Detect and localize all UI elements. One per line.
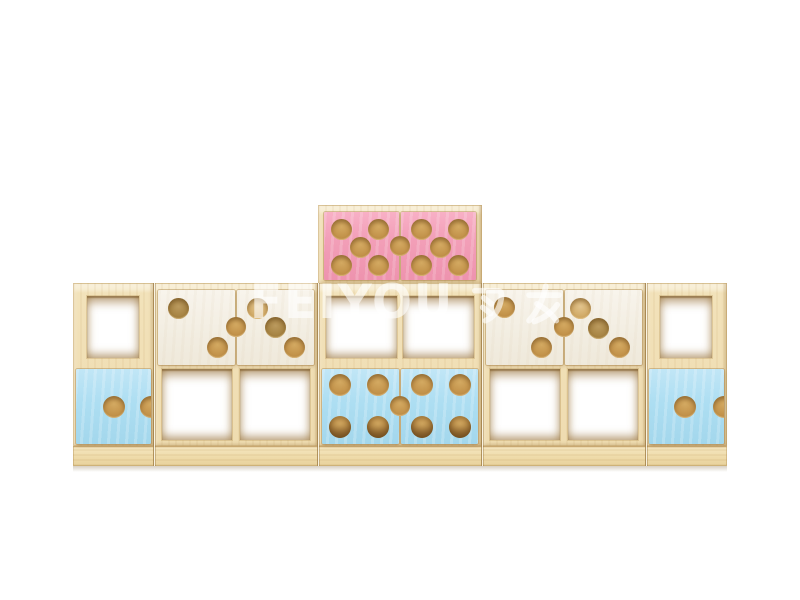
module-left-cube-plinth: [73, 446, 154, 466]
furniture-stage: FEIYOU: [0, 0, 800, 600]
door-pair-handle: [390, 396, 410, 416]
module-white-double-right-plinth: [482, 446, 646, 466]
door-edge-notch: [713, 396, 724, 418]
door-hole: [430, 237, 451, 258]
door-hole: [570, 298, 591, 319]
module-right-cube-plinth: [646, 446, 727, 466]
door-hole: [368, 255, 389, 276]
door-edge-notch: [140, 396, 151, 418]
door-hole: [168, 298, 189, 319]
module-center-tower-cubby-1: [326, 296, 397, 358]
module-center-tower-door-blue-4: [401, 369, 478, 444]
ground-shadow: [73, 466, 727, 473]
module-white-double-right-door-white-2: [565, 290, 642, 365]
door-hole: [331, 219, 352, 240]
module-junction: [481, 283, 484, 466]
door-hole: [329, 374, 351, 396]
door-hole: [207, 337, 228, 358]
door-hole: [494, 297, 515, 318]
module-junction: [645, 283, 648, 466]
module-junction: [317, 283, 320, 466]
module-white-double-right-cubby-1: [490, 369, 560, 440]
door-hole: [449, 416, 471, 438]
door-hole: [411, 374, 433, 396]
door-pair-handle: [554, 317, 574, 337]
door-hole: [588, 318, 609, 339]
door-hole: [368, 219, 389, 240]
door-pair-handle: [226, 317, 246, 337]
door-hole: [609, 337, 630, 358]
door-hole: [674, 396, 696, 418]
door-hole: [448, 255, 469, 276]
module-white-double-right-cubby-2: [568, 369, 638, 440]
module-right-cube-cubby-1: [660, 296, 712, 358]
door-hole: [329, 416, 351, 438]
door-hole: [531, 337, 552, 358]
module-right-cube-door-blue-1: [649, 369, 724, 444]
module-white-double-right-door-white-1: [486, 290, 563, 365]
door-hole: [350, 237, 371, 258]
door-hole: [247, 298, 268, 319]
door-hole: [367, 416, 389, 438]
door-hole: [284, 337, 305, 358]
module-center-tower-door-blue-3: [322, 369, 399, 444]
door-hole: [448, 219, 469, 240]
door-hole: [367, 374, 389, 396]
module-center-tower-door-pink-2: [401, 212, 476, 280]
module-white-double-left-cubby-1: [162, 369, 232, 440]
module-center-tower-plinth: [318, 446, 482, 466]
module-white-double-left-cubby-2: [240, 369, 310, 440]
door-pair-handle: [390, 236, 410, 256]
door-hole: [411, 255, 432, 276]
door-hole: [449, 374, 471, 396]
module-center-tower-cubby-2: [403, 296, 474, 358]
module-white-double-left-plinth: [154, 446, 318, 466]
door-hole: [411, 416, 433, 438]
module-junction: [153, 283, 156, 466]
door-hole: [265, 317, 286, 338]
door-hole: [411, 219, 432, 240]
module-left-cube-door-blue-1: [76, 369, 151, 444]
door-hole: [331, 255, 352, 276]
module-center-tower-door-pink-1: [324, 212, 399, 280]
module-white-double-left-door-white-2: [237, 290, 314, 365]
module-left-cube-cubby-1: [87, 296, 139, 358]
module-white-double-left-door-white-1: [158, 290, 235, 365]
door-hole: [103, 396, 125, 418]
